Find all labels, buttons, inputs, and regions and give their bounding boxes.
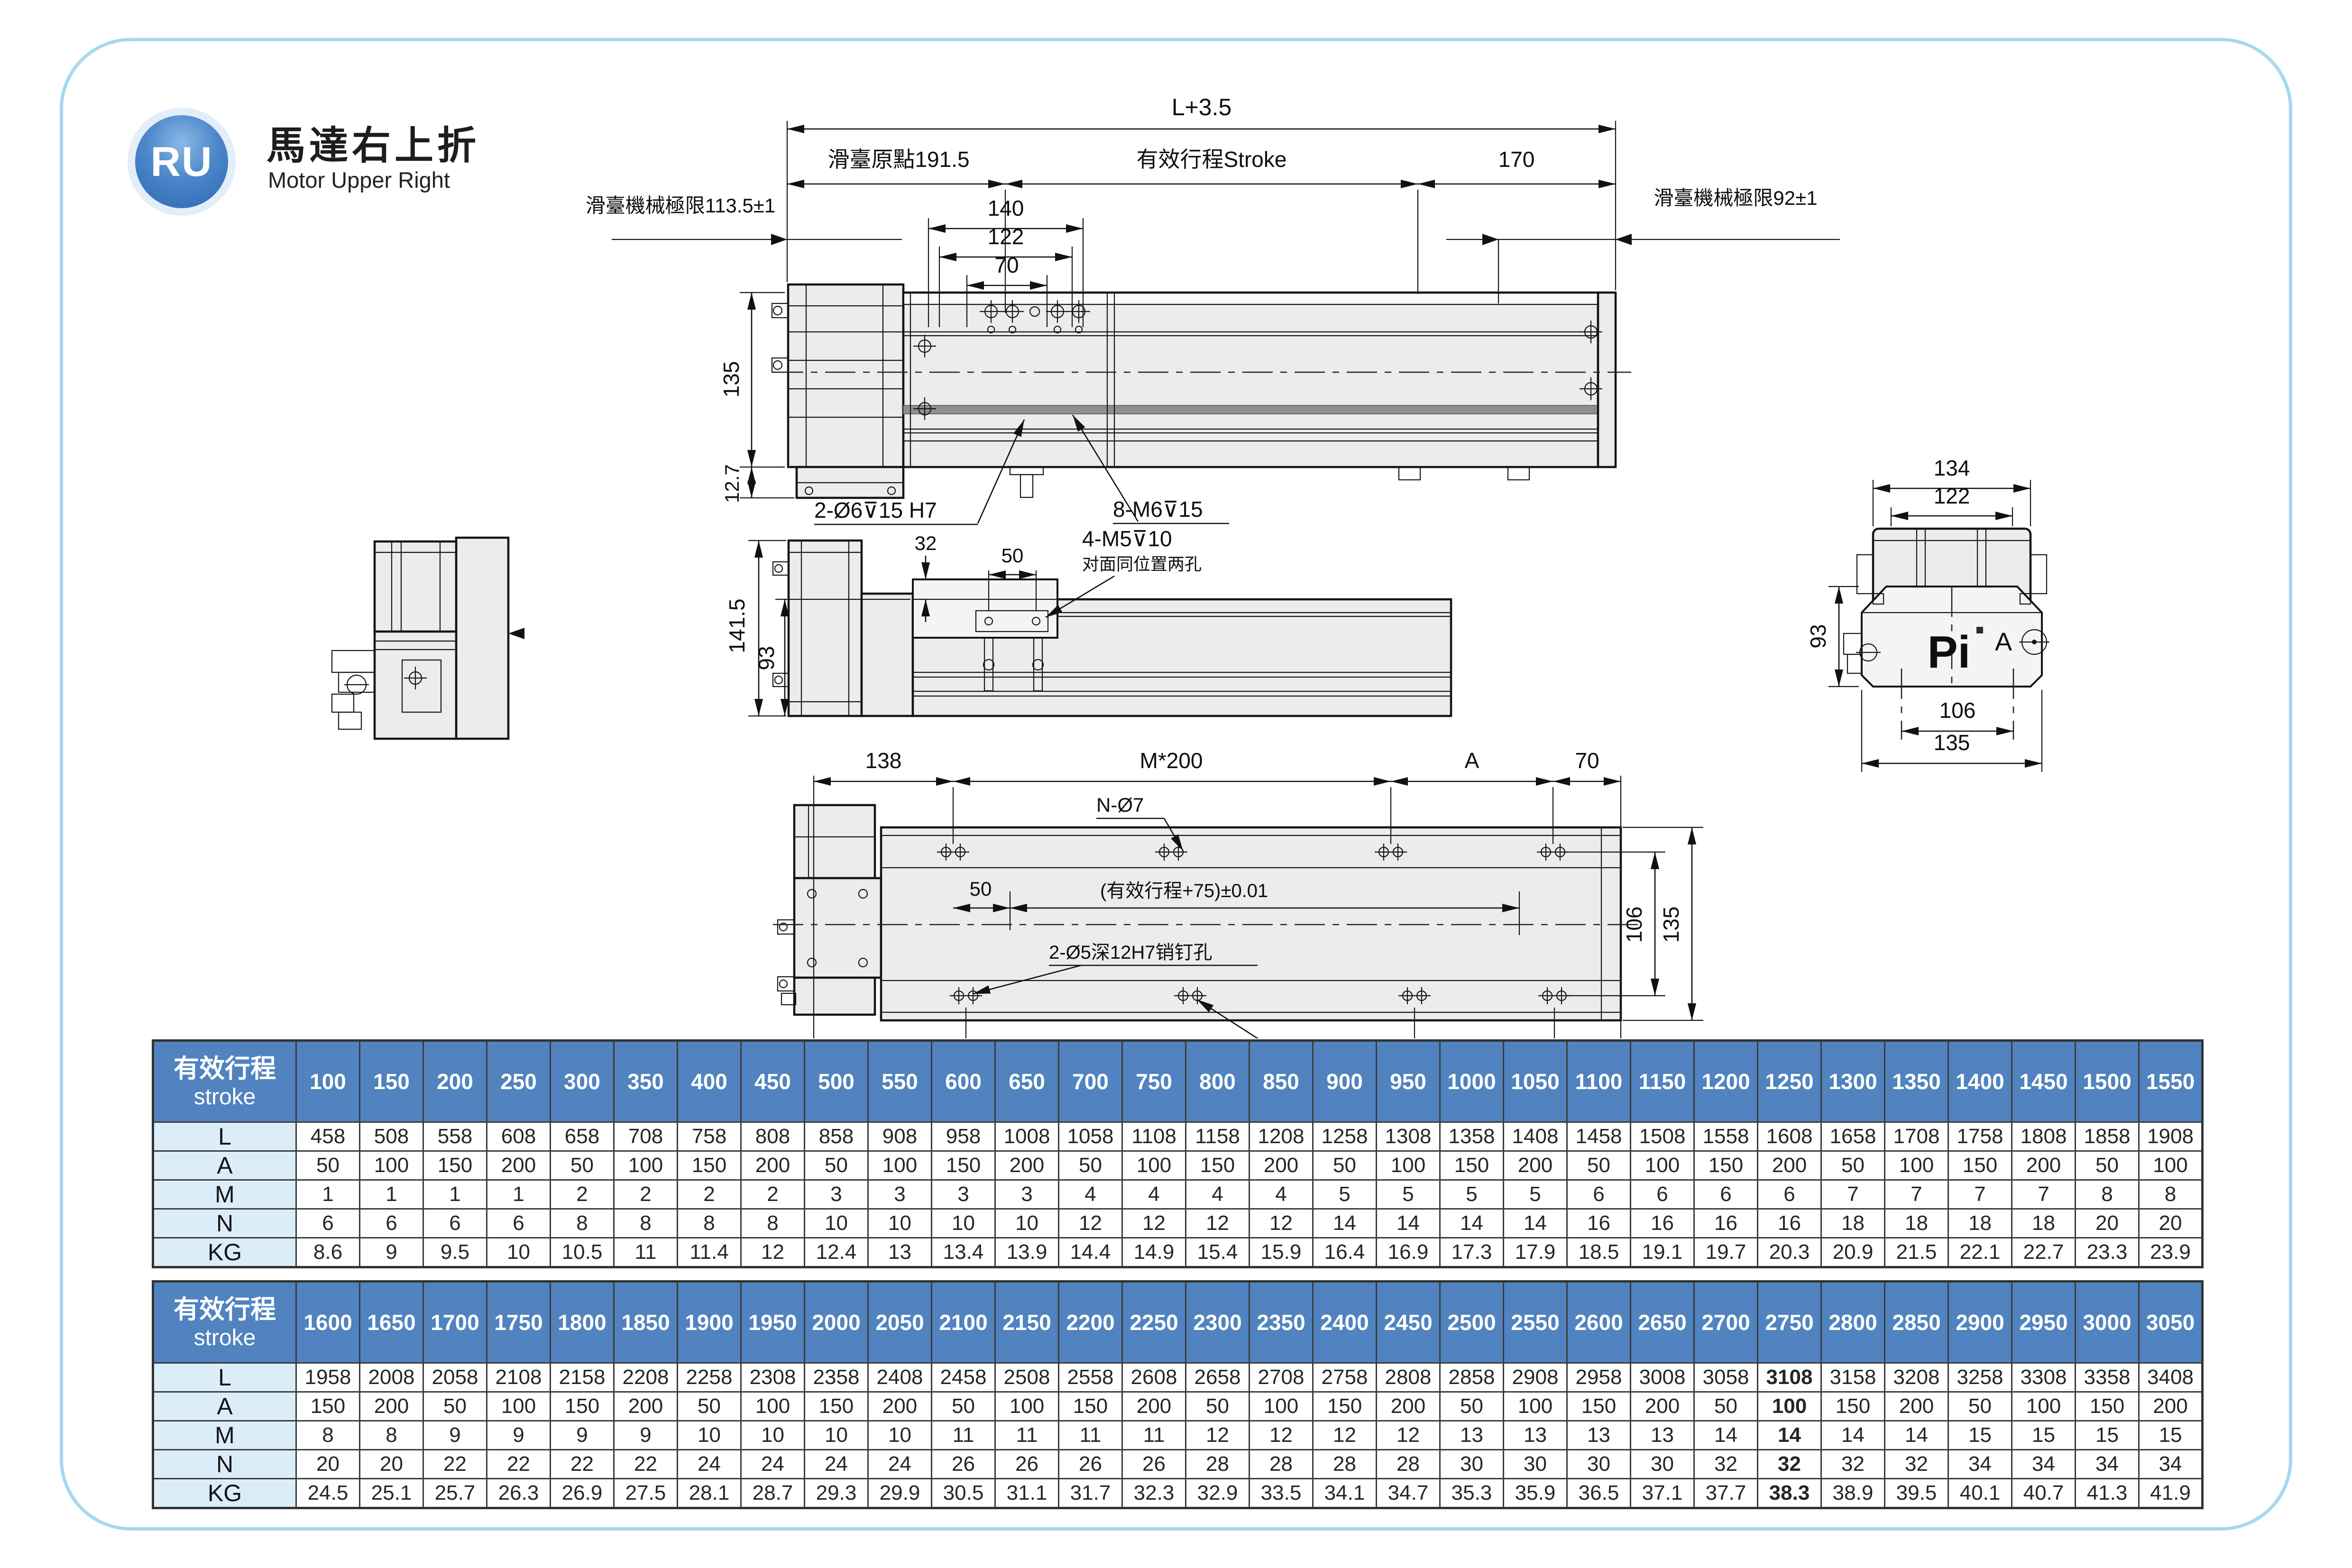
cell-M-2450: 12: [1377, 1421, 1440, 1450]
cell-KG-800: 15.4: [1186, 1238, 1249, 1267]
cell-N-800: 12: [1186, 1209, 1249, 1238]
cell-M-500: 3: [805, 1180, 868, 1209]
cell-N-2500: 30: [1440, 1450, 1504, 1479]
stroke-col-1700: 1700: [423, 1282, 487, 1363]
cell-M-1600: 8: [296, 1421, 360, 1450]
cell-L-2450: 2808: [1377, 1363, 1440, 1392]
cell-KG-500: 12.4: [805, 1238, 868, 1267]
cell-L-750: 1108: [1122, 1122, 1186, 1151]
cell-KG-2100: 30.5: [932, 1479, 995, 1508]
cell-M-1550: 8: [2139, 1180, 2203, 1209]
cell-N-2650: 30: [1631, 1450, 1694, 1479]
cell-M-450: 2: [741, 1180, 805, 1209]
cell-L-2350: 2708: [1249, 1363, 1313, 1392]
dim-50-side: 50: [1001, 544, 1024, 567]
cell-A-1750: 100: [487, 1392, 551, 1421]
cell-M-250: 1: [487, 1180, 551, 1209]
cell-A-1550: 100: [2139, 1151, 2203, 1180]
cell-A-1950: 100: [741, 1392, 805, 1421]
cell-L-350: 708: [614, 1122, 678, 1151]
cell-A-1150: 100: [1631, 1151, 1694, 1180]
cell-KG-1350: 21.5: [1885, 1238, 1948, 1267]
stroke-col-2500: 2500: [1440, 1282, 1504, 1363]
stroke-col-2150: 2150: [995, 1282, 1059, 1363]
cell-A-600: 150: [932, 1151, 995, 1180]
cell-L-950: 1308: [1377, 1122, 1440, 1151]
row-label-L: L: [153, 1363, 296, 1392]
cell-N-1750: 22: [487, 1450, 551, 1479]
stroke-col-150: 150: [360, 1041, 423, 1122]
cell-KG-950: 16.9: [1377, 1238, 1440, 1267]
stroke-col-500: 500: [805, 1041, 868, 1122]
cell-M-2750: 14: [1758, 1421, 1821, 1450]
end-view: Pi A 134 122 93 106 135: [1806, 456, 2049, 772]
cell-N-2900: 34: [1948, 1450, 2012, 1479]
cell-A-550: 100: [868, 1151, 932, 1180]
front-motor: [788, 284, 903, 467]
cell-N-850: 12: [1249, 1209, 1313, 1238]
cell-L-2550: 2908: [1504, 1363, 1567, 1392]
cell-KG-750: 14.9: [1122, 1238, 1186, 1267]
cell-M-2850: 14: [1885, 1421, 1948, 1450]
stroke-col-250: 250: [487, 1041, 551, 1122]
cell-L-1250: 1608: [1758, 1122, 1821, 1151]
cell-KG-1900: 28.1: [678, 1479, 741, 1508]
stroke-col-1050: 1050: [1504, 1041, 1567, 1122]
row-label-A: A: [153, 1151, 296, 1180]
cell-KG-900: 16.4: [1313, 1238, 1377, 1267]
cell-A-2150: 100: [995, 1392, 1059, 1421]
stroke-col-2950: 2950: [2012, 1282, 2076, 1363]
cell-M-1050: 5: [1504, 1180, 1567, 1209]
cell-M-2800: 14: [1821, 1421, 1885, 1450]
cell-A-250: 200: [487, 1151, 551, 1180]
cell-A-800: 150: [1186, 1151, 1249, 1180]
stroke-col-1400: 1400: [1948, 1041, 2012, 1122]
stroke-col-2350: 2350: [1249, 1282, 1313, 1363]
row-label-KG: KG: [153, 1238, 296, 1267]
cell-L-1900: 2258: [678, 1363, 741, 1392]
cell-KG-2450: 34.7: [1377, 1479, 1440, 1508]
cell-N-3000: 34: [2076, 1450, 2139, 1479]
cell-M-1850: 9: [614, 1421, 678, 1450]
cell-L-2200: 2558: [1059, 1363, 1122, 1392]
cell-N-2350: 28: [1249, 1450, 1313, 1479]
cell-N-1450: 18: [2012, 1209, 2076, 1238]
cell-L-1050: 1408: [1504, 1122, 1567, 1151]
cell-A-1800: 150: [551, 1392, 614, 1421]
cell-N-700: 12: [1059, 1209, 1122, 1238]
cell-M-2050: 10: [868, 1421, 932, 1450]
cell-KG-1600: 24.5: [296, 1479, 360, 1508]
pi-brand-mark: Pi: [1928, 627, 1971, 678]
cell-L-2000: 2358: [805, 1363, 868, 1392]
dim-138: 138: [865, 748, 902, 773]
callout-screws-front: 8-M6⊽15: [1113, 497, 1203, 522]
row-label-M: M: [153, 1421, 296, 1450]
cell-A-300: 50: [551, 1151, 614, 1180]
stroke-col-2050: 2050: [868, 1282, 932, 1363]
cell-A-2100: 50: [932, 1392, 995, 1421]
stroke-col-1100: 1100: [1567, 1041, 1631, 1122]
cell-M-800: 4: [1186, 1180, 1249, 1209]
cell-KG-2650: 37.1: [1631, 1479, 1694, 1508]
cell-L-500: 858: [805, 1122, 868, 1151]
cell-L-2150: 2508: [995, 1363, 1059, 1392]
stroke-col-350: 350: [614, 1041, 678, 1122]
cell-L-2100: 2458: [932, 1363, 995, 1392]
stroke-col-550: 550: [868, 1041, 932, 1122]
cell-M-1150: 6: [1631, 1180, 1694, 1209]
cell-N-150: 6: [360, 1209, 423, 1238]
cell-M-300: 2: [551, 1180, 614, 1209]
reference-arrow: [508, 628, 524, 639]
side-view: 141.5 93 32 50 4-M5⊽10 对面同位置两孔: [725, 526, 1451, 716]
cell-A-1100: 50: [1567, 1151, 1631, 1180]
stroke-col-1950: 1950: [741, 1282, 805, 1363]
cell-A-150: 100: [360, 1151, 423, 1180]
cell-M-200: 1: [423, 1180, 487, 1209]
cell-N-2550: 30: [1504, 1450, 1567, 1479]
stroke-col-3050: 3050: [2139, 1282, 2203, 1363]
cell-A-450: 200: [741, 1151, 805, 1180]
cell-M-2950: 15: [2012, 1421, 2076, 1450]
dim-122-end: 122: [1934, 484, 1970, 508]
stroke-col-1250: 1250: [1758, 1041, 1821, 1122]
cell-L-2900: 3258: [1948, 1363, 2012, 1392]
cell-A-2300: 50: [1186, 1392, 1249, 1421]
cell-A-950: 100: [1377, 1151, 1440, 1180]
dim-135-top: 135: [1659, 907, 1683, 943]
callout-screws-side: 4-M5⊽10: [1082, 526, 1172, 551]
cell-A-100: 50: [296, 1151, 360, 1180]
stroke-col-100: 100: [296, 1041, 360, 1122]
cell-L-2800: 3158: [1821, 1363, 1885, 1392]
cell-A-2200: 150: [1059, 1392, 1122, 1421]
cell-L-1850: 2208: [614, 1363, 678, 1392]
cell-L-1600: 1958: [296, 1363, 360, 1392]
cell-L-2500: 2858: [1440, 1363, 1504, 1392]
stroke-col-2400: 2400: [1313, 1282, 1377, 1363]
cell-KG-850: 15.9: [1249, 1238, 1313, 1267]
cell-L-3000: 3358: [2076, 1363, 2139, 1392]
cell-M-3000: 15: [2076, 1421, 2139, 1450]
dim-m200-top: M*200: [1140, 748, 1203, 773]
dim-total-length: L+3.5: [1172, 94, 1232, 120]
cell-M-350: 2: [614, 1180, 678, 1209]
cell-M-1350: 7: [1885, 1180, 1948, 1209]
cell-M-900: 5: [1313, 1180, 1377, 1209]
cell-N-950: 14: [1377, 1209, 1440, 1238]
cell-KG-2900: 40.1: [1948, 1479, 2012, 1508]
cell-L-1800: 2158: [551, 1363, 614, 1392]
cell-A-850: 200: [1249, 1151, 1313, 1180]
cell-L-1100: 1458: [1567, 1122, 1631, 1151]
cell-N-1500: 20: [2076, 1209, 2139, 1238]
cell-M-950: 5: [1377, 1180, 1440, 1209]
cell-N-550: 10: [868, 1209, 932, 1238]
cell-N-1050: 14: [1504, 1209, 1567, 1238]
cell-N-1300: 18: [1821, 1209, 1885, 1238]
cell-KG-2050: 29.9: [868, 1479, 932, 1508]
dim-93-end: 93: [1806, 624, 1830, 648]
cell-M-1950: 10: [741, 1421, 805, 1450]
dim-stroke: 有效行程Stroke: [1137, 147, 1287, 172]
stroke-col-1800: 1800: [551, 1282, 614, 1363]
cell-KG-1650: 25.1: [360, 1479, 423, 1508]
stroke-col-1750: 1750: [487, 1282, 551, 1363]
cell-A-3050: 200: [2139, 1392, 2203, 1421]
stroke-col-2300: 2300: [1186, 1282, 1249, 1363]
cell-KG-1200: 19.7: [1694, 1238, 1758, 1267]
stroke-col-850: 850: [1249, 1041, 1313, 1122]
stroke-col-400: 400: [678, 1041, 741, 1122]
cell-M-1800: 9: [551, 1421, 614, 1450]
stroke-col-300: 300: [551, 1041, 614, 1122]
cell-KG-550: 13: [868, 1238, 932, 1267]
cell-N-1950: 24: [741, 1450, 805, 1479]
cell-KG-2200: 31.7: [1059, 1479, 1122, 1508]
cell-KG-3000: 41.3: [2076, 1479, 2139, 1508]
cell-KG-250: 10: [487, 1238, 551, 1267]
cell-M-1300: 7: [1821, 1180, 1885, 1209]
stroke-col-2750: 2750: [1758, 1282, 1821, 1363]
callout-n-holes: N-Ø7: [1096, 794, 1144, 816]
stroke-col-450: 450: [741, 1041, 805, 1122]
cell-A-1050: 200: [1504, 1151, 1567, 1180]
cell-N-1650: 20: [360, 1450, 423, 1479]
cell-L-150: 508: [360, 1122, 423, 1151]
cell-A-2450: 200: [1377, 1392, 1440, 1421]
cell-KG-1950: 28.7: [741, 1479, 805, 1508]
row-label-L: L: [153, 1122, 296, 1151]
cell-M-1100: 6: [1567, 1180, 1631, 1209]
cell-L-1700: 2058: [423, 1363, 487, 1392]
row-label-N: N: [153, 1450, 296, 1479]
cell-L-300: 658: [551, 1122, 614, 1151]
cell-KG-3050: 41.9: [2139, 1479, 2203, 1508]
cell-A-1650: 200: [360, 1392, 423, 1421]
cell-M-2000: 10: [805, 1421, 868, 1450]
cell-N-1100: 16: [1567, 1209, 1631, 1238]
stroke-col-1500: 1500: [2076, 1041, 2139, 1122]
cell-M-2350: 12: [1249, 1421, 1313, 1450]
row-label-KG: KG: [153, 1479, 296, 1508]
cell-A-1450: 200: [2012, 1151, 2076, 1180]
cell-KG-1300: 20.9: [1821, 1238, 1885, 1267]
cell-L-650: 1008: [995, 1122, 1059, 1151]
stroke-col-2250: 2250: [1122, 1282, 1186, 1363]
cell-N-2850: 32: [1885, 1450, 1948, 1479]
cell-N-2300: 28: [1186, 1450, 1249, 1479]
cell-N-350: 8: [614, 1209, 678, 1238]
stroke-col-1650: 1650: [360, 1282, 423, 1363]
section-label-a: A: [1995, 628, 2012, 656]
cell-M-2150: 11: [995, 1421, 1059, 1450]
cell-M-1400: 7: [1948, 1180, 2012, 1209]
front-endcap: [1598, 293, 1616, 467]
cell-A-1350: 100: [1885, 1151, 1948, 1180]
cell-KG-2000: 29.3: [805, 1479, 868, 1508]
cell-N-1000: 14: [1440, 1209, 1504, 1238]
cell-N-100: 6: [296, 1209, 360, 1238]
cell-KG-600: 13.4: [932, 1238, 995, 1267]
stroke-col-2200: 2200: [1059, 1282, 1122, 1363]
row-label-N: N: [153, 1209, 296, 1238]
cell-A-2250: 200: [1122, 1392, 1186, 1421]
stroke-table-1: 有效行程stroke100150200250300350400450500550…: [152, 1039, 2204, 1268]
cell-N-1550: 20: [2139, 1209, 2203, 1238]
cell-L-850: 1208: [1249, 1122, 1313, 1151]
cell-N-500: 10: [805, 1209, 868, 1238]
cell-M-1900: 10: [678, 1421, 741, 1450]
cell-M-1450: 7: [2012, 1180, 2076, 1209]
top-view: 138 M*200 A 70 N-Ø7 50 (有效行程+75)±0.01 2-…: [773, 748, 1703, 1038]
cell-N-600: 10: [932, 1209, 995, 1238]
stroke-col-2000: 2000: [805, 1282, 868, 1363]
cell-L-2300: 2658: [1186, 1363, 1249, 1392]
stroke-col-2850: 2850: [1885, 1282, 1948, 1363]
cell-L-2750: 3108: [1758, 1363, 1821, 1392]
dim-122: 122: [988, 224, 1024, 249]
cell-A-1400: 150: [1948, 1151, 2012, 1180]
cell-KG-2300: 32.9: [1186, 1479, 1249, 1508]
dim-12-7: 12.7: [721, 464, 743, 503]
stroke-col-1850: 1850: [614, 1282, 678, 1363]
row-label-A: A: [153, 1392, 296, 1421]
cell-L-1650: 2008: [360, 1363, 423, 1392]
cell-M-2550: 13: [1504, 1421, 1567, 1450]
cell-N-250: 6: [487, 1209, 551, 1238]
dim-50-top: 50: [970, 878, 992, 900]
cell-M-700: 4: [1059, 1180, 1122, 1209]
cell-N-2450: 28: [1377, 1450, 1440, 1479]
cell-M-2500: 13: [1440, 1421, 1504, 1450]
cell-A-3000: 150: [2076, 1392, 2139, 1421]
cell-L-600: 958: [932, 1122, 995, 1151]
cell-A-2800: 150: [1821, 1392, 1885, 1421]
cell-L-2400: 2758: [1313, 1363, 1377, 1392]
cell-KG-2250: 32.3: [1122, 1479, 1186, 1508]
cell-KG-1550: 23.9: [2139, 1238, 2203, 1267]
cell-M-2400: 12: [1313, 1421, 1377, 1450]
cell-N-1850: 22: [614, 1450, 678, 1479]
cell-KG-2600: 36.5: [1567, 1479, 1631, 1508]
dim-origin: 滑臺原點191.5: [827, 147, 969, 172]
cell-M-2100: 11: [932, 1421, 995, 1450]
cell-M-1000: 5: [1440, 1180, 1504, 1209]
cell-A-650: 200: [995, 1151, 1059, 1180]
stroke-col-1200: 1200: [1694, 1041, 1758, 1122]
cell-L-1950: 2308: [741, 1363, 805, 1392]
stroke-col-2700: 2700: [1694, 1282, 1758, 1363]
cell-KG-1850: 27.5: [614, 1479, 678, 1508]
cell-M-2900: 15: [1948, 1421, 2012, 1450]
cell-L-250: 608: [487, 1122, 551, 1151]
cell-M-150: 1: [360, 1180, 423, 1209]
cell-L-3050: 3408: [2139, 1363, 2203, 1392]
dim-140: 140: [988, 196, 1024, 220]
cell-KG-2550: 35.9: [1504, 1479, 1567, 1508]
stroke-header-label: 有效行程stroke: [153, 1041, 296, 1122]
cell-N-1600: 20: [296, 1450, 360, 1479]
stroke-col-2600: 2600: [1567, 1282, 1631, 1363]
cell-M-100: 1: [296, 1180, 360, 1209]
cell-KG-2950: 40.7: [2012, 1479, 2076, 1508]
cell-L-700: 1058: [1059, 1122, 1122, 1151]
cell-KG-1500: 23.3: [2076, 1238, 2139, 1267]
cell-KG-1100: 18.5: [1567, 1238, 1631, 1267]
cell-N-2600: 30: [1567, 1450, 1631, 1479]
stroke-col-2900: 2900: [1948, 1282, 2012, 1363]
cell-A-1000: 150: [1440, 1151, 1504, 1180]
dim-106-top: 106: [1622, 907, 1646, 943]
cell-A-700: 50: [1059, 1151, 1122, 1180]
cell-N-2100: 26: [932, 1450, 995, 1479]
cell-KG-2750: 38.3: [1758, 1479, 1821, 1508]
stroke-col-2450: 2450: [1377, 1282, 1440, 1363]
cell-L-2950: 3308: [2012, 1363, 2076, 1392]
cell-N-1200: 16: [1694, 1209, 1758, 1238]
cell-N-2200: 26: [1059, 1450, 1122, 1479]
dim-32: 32: [915, 532, 937, 554]
row-label-M: M: [153, 1180, 296, 1209]
cell-KG-100: 8.6: [296, 1238, 360, 1267]
cell-N-300: 8: [551, 1209, 614, 1238]
cell-KG-450: 12: [741, 1238, 805, 1267]
stroke-col-750: 750: [1122, 1041, 1186, 1122]
cell-L-800: 1158: [1186, 1122, 1249, 1151]
callout-pin-holes: 2-Ø5深12H7销钉孔: [1049, 942, 1213, 963]
cell-L-1400: 1758: [1948, 1122, 2012, 1151]
cell-N-2000: 24: [805, 1450, 868, 1479]
cell-M-1250: 6: [1758, 1180, 1821, 1209]
cell-KG-2850: 39.5: [1885, 1479, 1948, 1508]
cell-L-1350: 1708: [1885, 1122, 1948, 1151]
cell-A-1600: 150: [296, 1392, 360, 1421]
cell-L-1500: 1858: [2076, 1122, 2139, 1151]
stroke-col-1000: 1000: [1440, 1041, 1504, 1122]
cell-N-2150: 26: [995, 1450, 1059, 1479]
cell-M-1200: 6: [1694, 1180, 1758, 1209]
cell-A-2950: 100: [2012, 1392, 2076, 1421]
cell-A-1700: 50: [423, 1392, 487, 1421]
cell-KG-1250: 20.3: [1758, 1238, 1821, 1267]
cell-L-2050: 2408: [868, 1363, 932, 1392]
cell-L-2850: 3208: [1885, 1363, 1948, 1392]
cell-N-1250: 16: [1758, 1209, 1821, 1238]
cell-L-100: 458: [296, 1122, 360, 1151]
cell-M-600: 3: [932, 1180, 995, 1209]
cell-A-1500: 50: [2076, 1151, 2139, 1180]
cell-KG-1050: 17.9: [1504, 1238, 1567, 1267]
cell-A-200: 150: [423, 1151, 487, 1180]
motor-side-view: [332, 538, 524, 739]
technical-drawing: L+3.5 滑臺原點191.5 有效行程Stroke 170 140 122 7…: [0, 0, 2352, 1038]
cell-KG-1700: 25.7: [423, 1479, 487, 1508]
cell-L-900: 1258: [1313, 1122, 1377, 1151]
stroke-col-800: 800: [1186, 1041, 1249, 1122]
stroke-col-1600: 1600: [296, 1282, 360, 1363]
cell-KG-2500: 35.3: [1440, 1479, 1504, 1508]
dim-stroke-tol: (有效行程+75)±0.01: [1100, 880, 1268, 901]
cell-L-1300: 1658: [1821, 1122, 1885, 1151]
cell-A-2700: 50: [1694, 1392, 1758, 1421]
stroke-col-1550: 1550: [2139, 1041, 2203, 1122]
cell-KG-350: 11: [614, 1238, 678, 1267]
cell-M-2300: 12: [1186, 1421, 1249, 1450]
cell-M-1650: 8: [360, 1421, 423, 1450]
